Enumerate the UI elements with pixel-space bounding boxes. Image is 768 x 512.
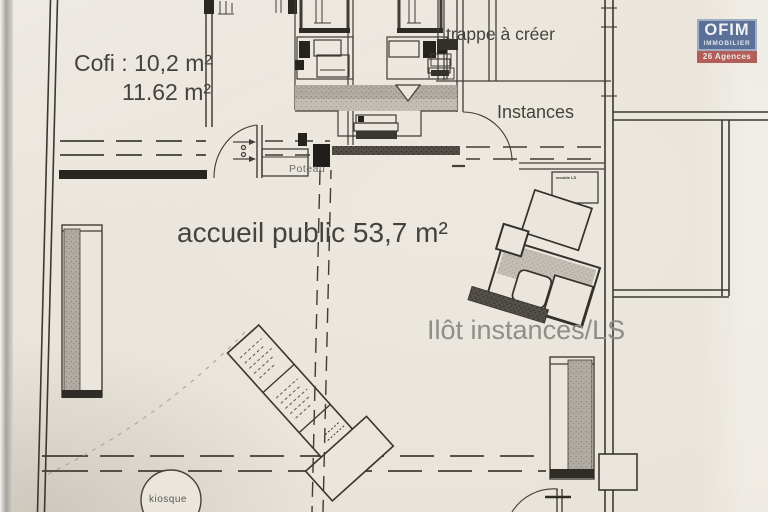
demolished-wall-bar (59, 170, 207, 179)
reception-desk (212, 312, 393, 501)
left-cabinet (62, 225, 102, 398)
annotation-ilot-instances: Ilôt instances/LS (427, 317, 625, 344)
annotation-poteau: Poteau (289, 164, 325, 175)
plan-linework (0, 0, 768, 512)
kiosque-circle (141, 470, 201, 512)
ofim-logo: OFIM IMMOBILIER 26 Agences (697, 19, 757, 63)
ofim-logo-blue-box: OFIM IMMOBILIER (697, 19, 757, 51)
room-label-cofi-area2: 11.62 m² (122, 81, 211, 104)
ofim-tagline-text: IMMOBILIER (699, 40, 755, 47)
bottom-dashed-rows (42, 456, 546, 471)
desk-island (468, 190, 604, 334)
photo-edge-strip (0, 0, 13, 512)
cofi-door-arc (214, 125, 262, 178)
label-meuble-ls: meuble LS (556, 176, 576, 180)
instances-room (452, 112, 604, 203)
room-label-cofi-area1: Cofi : 10,2 m² (74, 52, 212, 75)
room-label-accueil-public: accueil public 53,7 m² (177, 219, 448, 247)
door-swing-arrows (233, 139, 256, 162)
wall-duct-box (599, 454, 637, 490)
floor-plan-photo: Cofi : 10,2 m² 11.62 m² trappe à créer I… (0, 0, 768, 512)
right-walls (601, 0, 768, 512)
left-wall (38, 0, 58, 512)
technical-block (295, 0, 463, 146)
room-label-instances: Instances (497, 103, 574, 121)
label-kiosque: kiosque (149, 495, 187, 505)
ofim-agencies-band: 26 Agences (697, 51, 757, 63)
bottom-door (512, 489, 571, 512)
annotation-trappe: trappe à créer (446, 26, 555, 44)
hatched-wall-band (332, 146, 460, 155)
ofim-brand-text: OFIM (699, 22, 755, 39)
right-cabinet (550, 357, 594, 479)
